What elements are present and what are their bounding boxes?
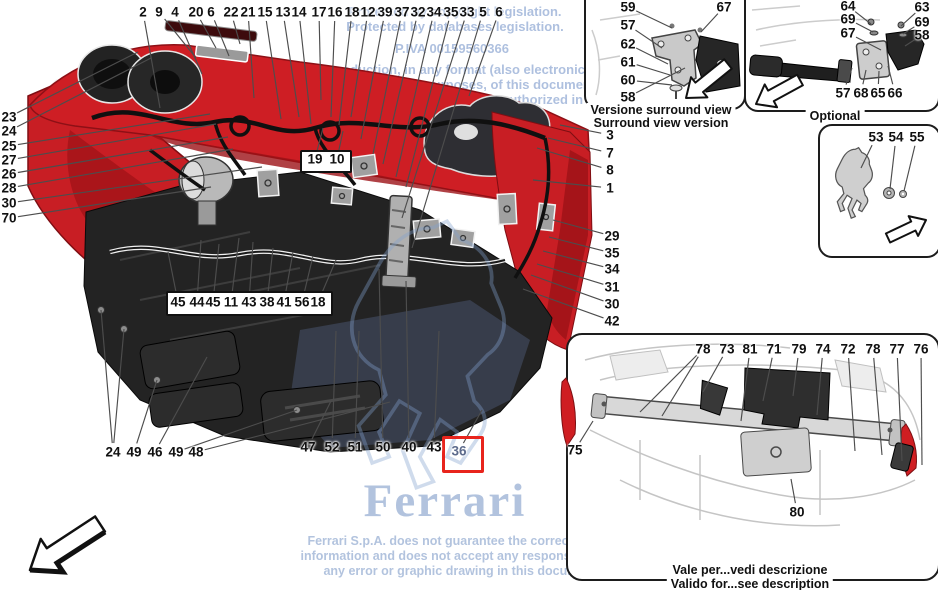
callout-22[interactable]: 22 (223, 5, 238, 20)
direction-arrow-icon (756, 75, 803, 108)
callout-9[interactable]: 9 (155, 5, 163, 20)
callout-66[interactable]: 66 (887, 86, 902, 101)
horse-panel-art (836, 148, 907, 219)
callout-30[interactable]: 30 (604, 297, 619, 312)
callout-54[interactable]: 54 (888, 130, 903, 145)
overlay-linework (0, 0, 938, 590)
callout-51[interactable]: 51 (347, 440, 362, 455)
callout-24[interactable]: 24 (1, 124, 16, 139)
callout-67[interactable]: 67 (840, 26, 855, 41)
callout-44[interactable]: 44 (189, 295, 204, 310)
callout-18[interactable]: 18 (344, 5, 359, 20)
callout-71[interactable]: 71 (766, 342, 781, 357)
callout-47[interactable]: 47 (300, 440, 315, 455)
callout-37[interactable]: 37 (394, 5, 409, 20)
callout-56[interactable]: 56 (294, 295, 309, 310)
callout-39[interactable]: 39 (377, 5, 392, 20)
callout-52[interactable]: 52 (324, 440, 339, 455)
callout-13[interactable]: 13 (275, 5, 290, 20)
callout-55[interactable]: 55 (909, 130, 924, 145)
callout-63[interactable]: 63 (914, 0, 929, 15)
callout-35[interactable]: 35 (443, 5, 458, 20)
optional-panel-art (749, 6, 924, 83)
callout-79[interactable]: 79 (791, 342, 806, 357)
callout-26[interactable]: 26 (1, 167, 16, 182)
callout-57[interactable]: 57 (620, 18, 635, 33)
callout-35[interactable]: 35 (604, 246, 619, 261)
callout-67[interactable]: 67 (716, 0, 731, 15)
direction-arrow-icon (30, 517, 105, 573)
callout-7[interactable]: 7 (606, 146, 614, 161)
callout-4[interactable]: 4 (171, 5, 179, 20)
callout-32[interactable]: 32 (410, 5, 425, 20)
callout-61[interactable]: 61 (620, 55, 635, 70)
surround-view-panel-art (592, 14, 740, 99)
callout-43[interactable]: 43 (241, 295, 256, 310)
callout-76[interactable]: 76 (913, 342, 928, 357)
callout-30[interactable]: 30 (1, 196, 16, 211)
callout-43[interactable]: 43 (426, 440, 441, 455)
callout-53[interactable]: 53 (868, 130, 883, 145)
callout-70[interactable]: 70 (1, 211, 16, 226)
callout-57[interactable]: 57 (835, 86, 850, 101)
direction-arrows (30, 59, 926, 572)
callout-75[interactable]: 75 (567, 443, 582, 458)
callout-31[interactable]: 31 (604, 280, 619, 295)
callout-59[interactable]: 59 (620, 0, 635, 15)
callout-58[interactable]: 58 (914, 28, 929, 43)
callout-19[interactable]: 19 (307, 152, 322, 167)
callout-50[interactable]: 50 (375, 440, 390, 455)
callout-62[interactable]: 62 (620, 37, 635, 52)
callout-29[interactable]: 29 (604, 229, 619, 244)
callout-68[interactable]: 68 (853, 86, 868, 101)
callout-41[interactable]: 41 (276, 295, 291, 310)
callout-8[interactable]: 8 (606, 163, 614, 178)
callout-48[interactable]: 48 (188, 445, 203, 460)
callout-21[interactable]: 21 (240, 5, 255, 20)
callout-34[interactable]: 34 (426, 5, 441, 20)
callout-1[interactable]: 1 (606, 181, 614, 196)
parts-diagram-page: Protected by copyright legislation. Prot… (0, 0, 938, 590)
callout-81[interactable]: 81 (742, 342, 757, 357)
callout-72[interactable]: 72 (840, 342, 855, 357)
callout-65[interactable]: 65 (870, 86, 885, 101)
callout-2[interactable]: 2 (139, 5, 147, 20)
surround-view-label-it: Versione surround view (586, 103, 735, 117)
callout-18[interactable]: 18 (310, 295, 325, 310)
callout-34[interactable]: 34 (604, 262, 619, 277)
callout-80[interactable]: 80 (789, 505, 804, 520)
callout-73[interactable]: 73 (719, 342, 734, 357)
callout-27[interactable]: 27 (1, 153, 16, 168)
callout-78[interactable]: 78 (695, 342, 710, 357)
callout-12[interactable]: 12 (360, 5, 375, 20)
callout-25[interactable]: 25 (1, 139, 16, 154)
callout-69[interactable]: 69 (840, 12, 855, 27)
callout-74[interactable]: 74 (815, 342, 830, 357)
callout-42[interactable]: 42 (604, 314, 619, 329)
callout-17[interactable]: 17 (311, 5, 326, 20)
callout-14[interactable]: 14 (291, 5, 306, 20)
callout-49[interactable]: 49 (168, 445, 183, 460)
callout-33[interactable]: 33 (459, 5, 474, 20)
callout-16[interactable]: 16 (327, 5, 342, 20)
callout-45[interactable]: 45 (170, 295, 185, 310)
prancing-horse-icon (836, 148, 873, 219)
callout-23[interactable]: 23 (1, 110, 16, 125)
callout-5[interactable]: 5 (479, 5, 487, 20)
callout-77[interactable]: 77 (889, 342, 904, 357)
callout-36[interactable]: 36 (451, 444, 466, 459)
callout-38[interactable]: 38 (259, 295, 274, 310)
optional-label: Optional (806, 109, 865, 123)
callout-15[interactable]: 15 (257, 5, 272, 20)
validity-panel-art (561, 344, 920, 526)
callout-78[interactable]: 78 (865, 342, 880, 357)
callout-46[interactable]: 46 (147, 445, 162, 460)
callout-20[interactable]: 20 (188, 5, 203, 20)
callout-60[interactable]: 60 (620, 73, 635, 88)
callout-28[interactable]: 28 (1, 181, 16, 196)
callout-11[interactable]: 11 (224, 295, 238, 310)
callout-49[interactable]: 49 (126, 445, 141, 460)
callout-24[interactable]: 24 (105, 445, 120, 460)
callout-10[interactable]: 10 (329, 152, 344, 167)
direction-arrow-icon (886, 216, 926, 242)
callout-6[interactable]: 6 (207, 5, 215, 20)
validity-label-en: Valido for...see description (667, 577, 833, 590)
validity-label-it: Vale per...vedi descrizione (669, 563, 832, 577)
callout-58[interactable]: 58 (620, 90, 635, 105)
callout-45[interactable]: 45 (205, 295, 220, 310)
callout-3[interactable]: 3 (606, 128, 614, 143)
callout-40[interactable]: 40 (401, 440, 416, 455)
callout-6[interactable]: 6 (495, 5, 503, 20)
